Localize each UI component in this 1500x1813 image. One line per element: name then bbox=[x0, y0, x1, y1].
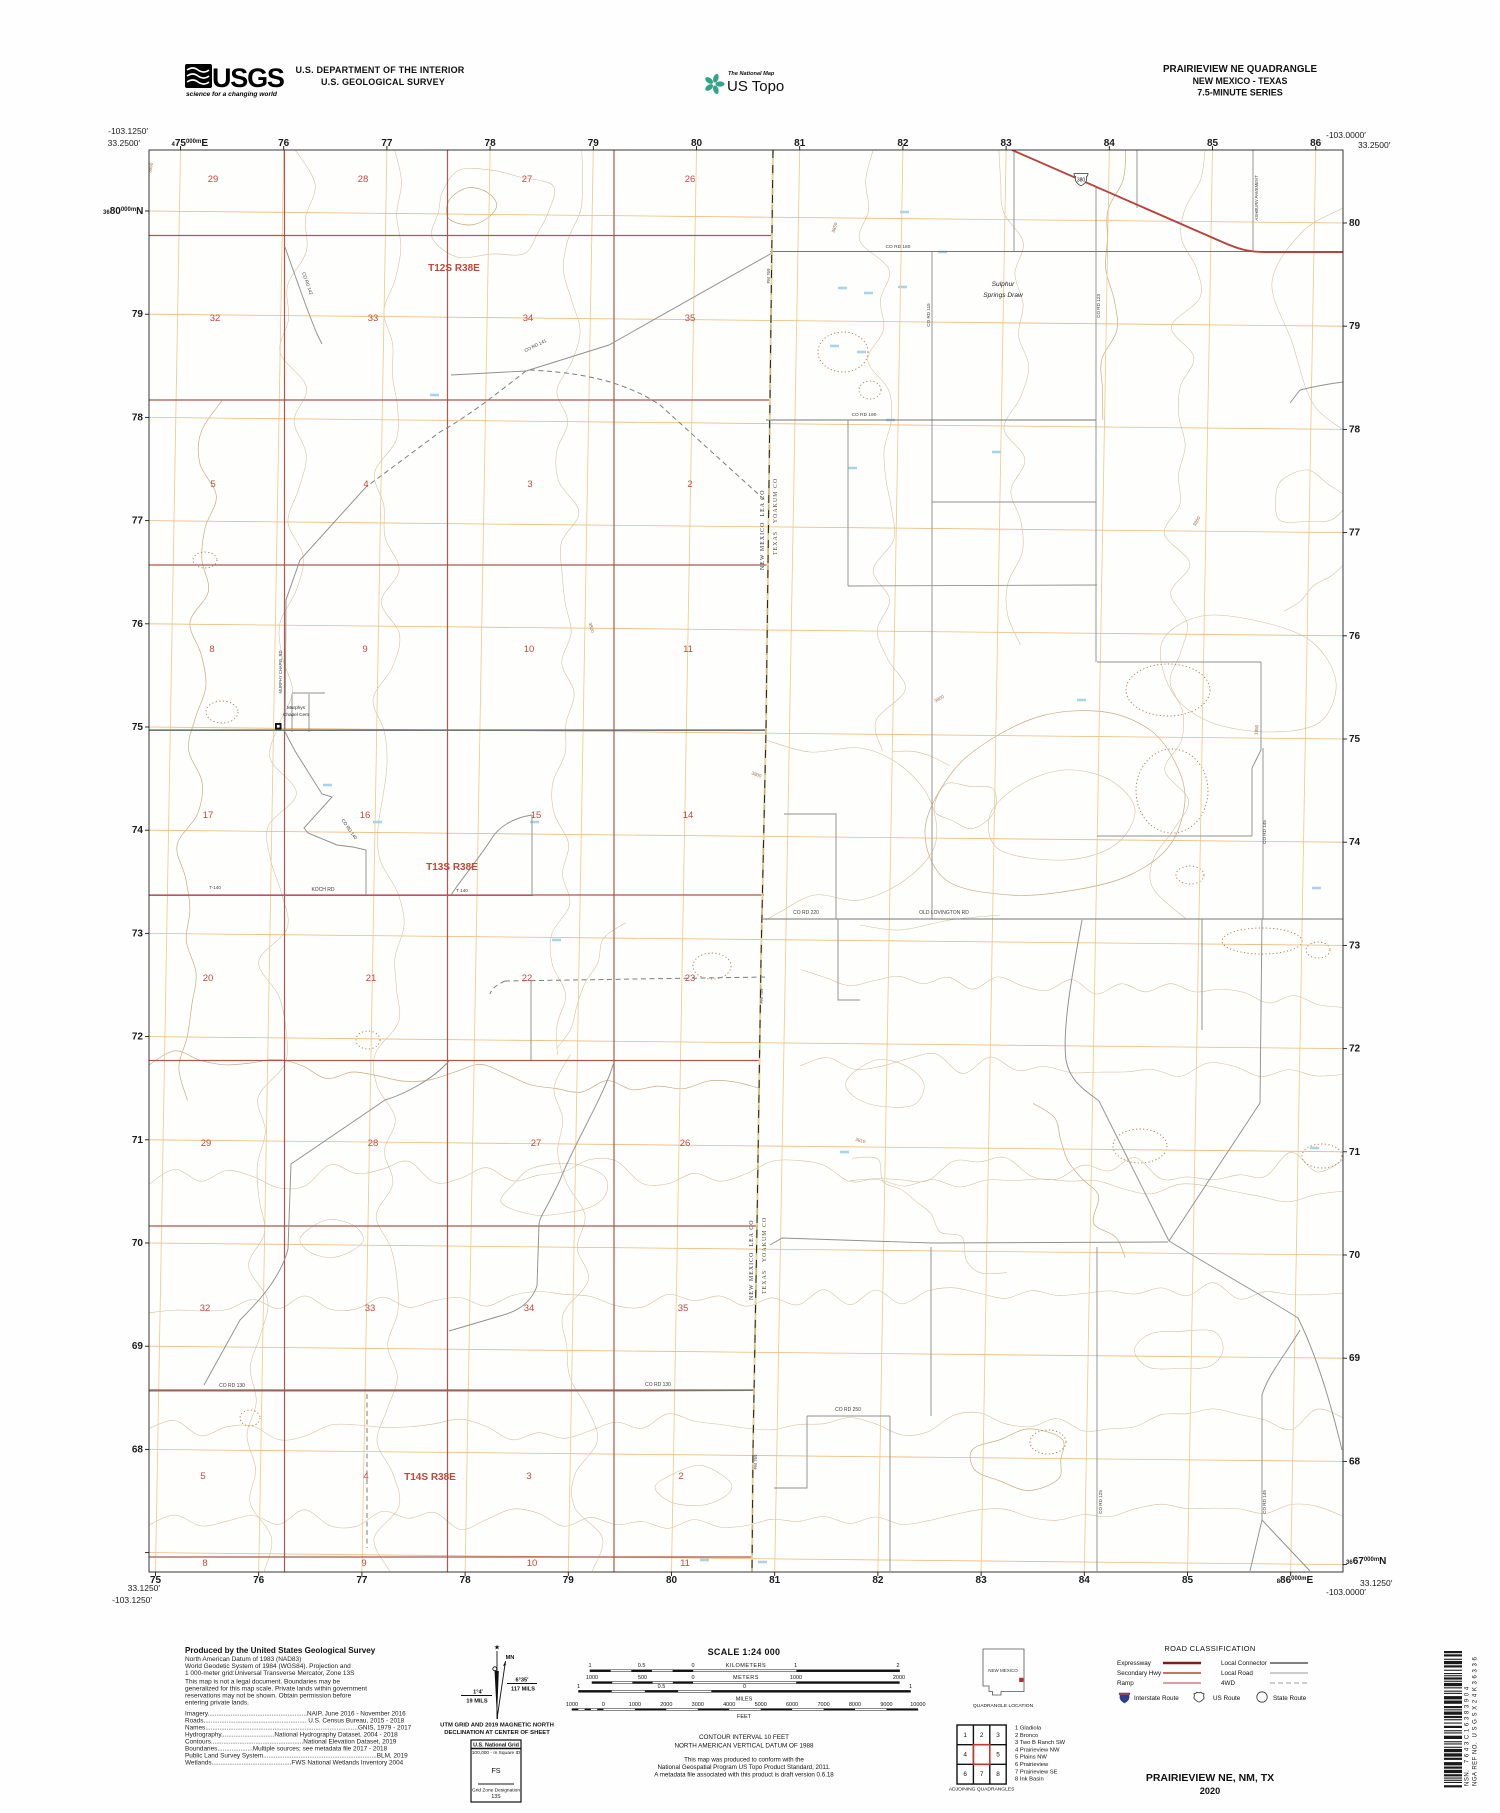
svg-text:-103.1250′: -103.1250′ bbox=[108, 126, 148, 136]
svg-text:80: 80 bbox=[691, 138, 703, 149]
svg-text:SCALE 1:24 000: SCALE 1:24 000 bbox=[708, 1647, 781, 1657]
svg-text:70: 70 bbox=[132, 1238, 144, 1249]
svg-text:11: 11 bbox=[683, 644, 693, 655]
svg-text:Secondary Hwy: Secondary Hwy bbox=[1117, 1670, 1162, 1677]
svg-text:2000: 2000 bbox=[660, 1702, 672, 1708]
svg-text:70: 70 bbox=[1349, 1250, 1361, 1261]
svg-text:FM 769: FM 769 bbox=[766, 268, 771, 283]
svg-text:77: 77 bbox=[356, 1575, 368, 1586]
svg-text:KOCH RD: KOCH RD bbox=[311, 887, 334, 893]
svg-text:2: 2 bbox=[980, 1732, 984, 1739]
svg-text:CO RD 123: CO RD 123 bbox=[1096, 294, 1101, 318]
svg-text:-103.0000′: -103.0000′ bbox=[1326, 1587, 1366, 1597]
svg-text:34: 34 bbox=[523, 313, 534, 324]
svg-text:0: 0 bbox=[602, 1702, 605, 1708]
svg-text:0: 0 bbox=[691, 1663, 694, 1669]
svg-text:33.1250′: 33.1250′ bbox=[128, 1583, 161, 1593]
svg-text:26: 26 bbox=[680, 1138, 691, 1149]
svg-text:19 MILS: 19 MILS bbox=[466, 1699, 487, 1705]
svg-text:20: 20 bbox=[203, 973, 214, 984]
svg-text:The National Map: The National Map bbox=[728, 71, 775, 77]
svg-text:8: 8 bbox=[209, 644, 214, 655]
svg-text:32: 32 bbox=[210, 313, 221, 324]
svg-text:6000: 6000 bbox=[786, 1702, 798, 1708]
svg-text:Roads.........................: Roads...................................… bbox=[185, 1718, 405, 1725]
svg-text:7.5-MINUTE SERIES: 7.5-MINUTE SERIES bbox=[1197, 88, 1283, 98]
svg-text:FS: FS bbox=[491, 1766, 500, 1775]
svg-text:A metadata file associated wit: A metadata file associated with this pro… bbox=[654, 1772, 834, 1779]
svg-text:79: 79 bbox=[563, 1575, 575, 1586]
svg-text:117 MILS: 117 MILS bbox=[511, 1687, 535, 1693]
svg-text:8: 8 bbox=[202, 1558, 207, 1569]
svg-text:34: 34 bbox=[524, 1303, 535, 1314]
svg-text:PRAIRIEVIEW NE QUADRANGLE: PRAIRIEVIEW NE QUADRANGLE bbox=[1163, 64, 1318, 75]
svg-text:NEW MEXICO - TEXAS: NEW MEXICO - TEXAS bbox=[1193, 76, 1288, 86]
svg-text:reservations may not be shown.: reservations may not be shown. Obtain pe… bbox=[185, 1693, 352, 1700]
svg-text:3 Two B Ranch SW: 3 Two B Ranch SW bbox=[1015, 1740, 1066, 1746]
svg-text:4: 4 bbox=[363, 1471, 368, 1482]
svg-text:35: 35 bbox=[685, 313, 696, 324]
svg-text:27: 27 bbox=[522, 174, 533, 185]
svg-text:13S: 13S bbox=[491, 1794, 501, 1800]
svg-text:77: 77 bbox=[1349, 528, 1361, 539]
svg-text:CO RD 190: CO RD 190 bbox=[852, 412, 877, 418]
svg-text:2: 2 bbox=[687, 479, 692, 490]
svg-text:76: 76 bbox=[132, 619, 144, 630]
svg-text:73: 73 bbox=[1349, 940, 1361, 951]
svg-text:5000: 5000 bbox=[755, 1702, 767, 1708]
svg-text:7: 7 bbox=[980, 1771, 984, 1778]
svg-text:9000: 9000 bbox=[880, 1702, 892, 1708]
svg-text:83: 83 bbox=[976, 1575, 988, 1586]
svg-text:Ramp: Ramp bbox=[1117, 1680, 1134, 1687]
svg-text:71: 71 bbox=[1349, 1147, 1361, 1158]
svg-text:CO RD 220: CO RD 220 bbox=[793, 910, 819, 916]
svg-text:FM 769: FM 769 bbox=[753, 1454, 758, 1469]
svg-text:METERS: METERS bbox=[733, 1675, 759, 1681]
svg-text:U.S. DEPARTMENT OF THE INTERIO: U.S. DEPARTMENT OF THE INTERIOR bbox=[295, 65, 464, 75]
svg-text:7 Prairieview SE: 7 Prairieview SE bbox=[1015, 1769, 1058, 1775]
svg-text:78: 78 bbox=[1349, 424, 1361, 435]
svg-text:68: 68 bbox=[132, 1444, 144, 1455]
svg-text:-103.1250′: -103.1250′ bbox=[112, 1595, 152, 1605]
svg-text:11: 11 bbox=[680, 1558, 690, 1569]
svg-text:CO RD 130: CO RD 130 bbox=[645, 1382, 671, 1388]
svg-text:78: 78 bbox=[132, 412, 144, 423]
svg-text:77: 77 bbox=[381, 138, 393, 149]
svg-text:NORTH AMERICAN VERTICAL DATUM: NORTH AMERICAN VERTICAL DATUM OF 1988 bbox=[674, 1743, 814, 1750]
svg-text:USGS: USGS bbox=[212, 63, 284, 93]
svg-text:T14S R38E: T14S R38E bbox=[404, 1472, 456, 1483]
svg-text:ADJOINING QUADRANGLES: ADJOINING QUADRANGLES bbox=[949, 1787, 1015, 1793]
svg-text:State Route: State Route bbox=[1273, 1695, 1307, 1702]
svg-text:1000: 1000 bbox=[586, 1675, 598, 1681]
svg-text:72: 72 bbox=[1349, 1044, 1361, 1055]
svg-text:CO RD 250: CO RD 250 bbox=[835, 1407, 861, 1413]
svg-text:2020: 2020 bbox=[1200, 1786, 1220, 1796]
svg-text:5: 5 bbox=[996, 1751, 1000, 1758]
svg-text:29: 29 bbox=[201, 1138, 212, 1149]
svg-text:Local Road: Local Road bbox=[1221, 1670, 1253, 1677]
svg-text:100,000 - m Square ID: 100,000 - m Square ID bbox=[472, 1750, 521, 1756]
svg-text:FEET: FEET bbox=[737, 1714, 752, 1720]
svg-text:KILOMETERS: KILOMETERS bbox=[726, 1663, 766, 1669]
svg-text:79: 79 bbox=[588, 138, 600, 149]
svg-text:1000: 1000 bbox=[566, 1702, 578, 1708]
svg-text:MILES: MILES bbox=[736, 1697, 753, 1703]
svg-text:Boundaries....................: Boundaries....................Multiple s… bbox=[185, 1746, 388, 1753]
svg-text:5: 5 bbox=[200, 1471, 205, 1482]
svg-text:7000: 7000 bbox=[817, 1702, 829, 1708]
svg-text:NEW MEXICO LEA CO: NEW MEXICO LEA CO bbox=[749, 1219, 755, 1300]
svg-text:T12S R38E: T12S R38E bbox=[428, 263, 480, 274]
svg-text:4WD: 4WD bbox=[1221, 1680, 1235, 1687]
svg-text:TEXAS YOAKUM CO: TEXAS YOAKUM CO bbox=[773, 478, 779, 555]
svg-text:28: 28 bbox=[368, 1138, 379, 1149]
svg-text:Chapel Cem: Chapel Cem bbox=[283, 712, 309, 717]
svg-text:NEW MEXICO: NEW MEXICO bbox=[988, 1668, 1018, 1673]
svg-text:2: 2 bbox=[678, 1471, 683, 1482]
svg-text:FM 769: FM 769 bbox=[759, 988, 764, 1003]
svg-text:5 Plains NW: 5 Plains NW bbox=[1015, 1755, 1047, 1761]
svg-text:1°4′: 1°4′ bbox=[473, 1690, 483, 1696]
svg-text:4000: 4000 bbox=[723, 1702, 735, 1708]
svg-text:1000: 1000 bbox=[790, 1675, 802, 1681]
svg-text:UTM GRID AND 2019 MAGNETIC NOR: UTM GRID AND 2019 MAGNETIC NORTH bbox=[440, 1723, 554, 1729]
svg-text:Local Connector: Local Connector bbox=[1221, 1660, 1267, 1667]
svg-text:Murphys: Murphys bbox=[287, 705, 306, 710]
svg-text:World Geodetic System of 1984: World Geodetic System of 1984 (WGS84). P… bbox=[185, 1663, 351, 1670]
svg-text:6°35′: 6°35′ bbox=[516, 1678, 530, 1684]
svg-text:9: 9 bbox=[362, 644, 367, 655]
svg-text:8 Ink Basin: 8 Ink Basin bbox=[1015, 1777, 1044, 1783]
svg-text:85: 85 bbox=[1182, 1575, 1194, 1586]
svg-text:33: 33 bbox=[365, 1303, 376, 1314]
svg-text:33.2500′: 33.2500′ bbox=[108, 138, 141, 148]
svg-text:77: 77 bbox=[132, 516, 144, 527]
svg-text:33: 33 bbox=[368, 313, 379, 324]
svg-text:NGA REF NO. U S G S X 2 4 K 3: NGA REF NO. U S G S X 2 4 K 3 6 3 3 6 bbox=[1473, 1656, 1479, 1786]
svg-text:27: 27 bbox=[531, 1138, 542, 1149]
svg-text:75: 75 bbox=[132, 722, 144, 733]
svg-text:1000: 1000 bbox=[629, 1702, 641, 1708]
svg-text:6 Prairieview: 6 Prairieview bbox=[1015, 1762, 1049, 1768]
svg-text:14: 14 bbox=[683, 810, 694, 821]
svg-text:74: 74 bbox=[1349, 837, 1361, 848]
svg-text:0.5: 0.5 bbox=[658, 1684, 666, 1690]
svg-text:23: 23 bbox=[685, 973, 696, 984]
svg-text:★: ★ bbox=[494, 1644, 500, 1652]
svg-text:81: 81 bbox=[794, 138, 806, 149]
svg-text:Produced by the United States: Produced by the United States Geological… bbox=[185, 1646, 376, 1655]
svg-text:1 Gladiola: 1 Gladiola bbox=[1015, 1726, 1042, 1732]
svg-text:ASHBURN PAVEMENT: ASHBURN PAVEMENT bbox=[1254, 175, 1259, 222]
svg-text:1: 1 bbox=[794, 1663, 797, 1669]
svg-text:10: 10 bbox=[524, 644, 535, 655]
svg-text:CO RD 145: CO RD 145 bbox=[1262, 820, 1267, 844]
svg-text:entering private lands.: entering private lands. bbox=[185, 1700, 249, 1707]
svg-text:78: 78 bbox=[485, 138, 497, 149]
svg-text:DECLINATION AT CENTER OF SHEET: DECLINATION AT CENTER OF SHEET bbox=[444, 1730, 550, 1736]
svg-text:71: 71 bbox=[132, 1135, 144, 1146]
svg-text:1: 1 bbox=[588, 1663, 591, 1669]
svg-text:CO RD 145: CO RD 145 bbox=[1262, 1490, 1267, 1514]
svg-text:Interstate Route: Interstate Route bbox=[1134, 1695, 1179, 1702]
svg-text:NSN. 7 6 4 3 C 1 6 3 8 3 9 0: NSN. 7 6 4 3 C 1 6 3 8 3 9 0 4 bbox=[1465, 1686, 1471, 1786]
svg-text:-103.0000′: -103.0000′ bbox=[1326, 130, 1366, 140]
svg-text:8: 8 bbox=[996, 1771, 1000, 1778]
svg-text:29: 29 bbox=[208, 174, 219, 185]
svg-text:0: 0 bbox=[691, 1675, 694, 1681]
svg-text:32: 32 bbox=[200, 1303, 211, 1314]
svg-text:OLD LOVINGTON RD: OLD LOVINGTON RD bbox=[919, 910, 969, 916]
svg-text:5: 5 bbox=[210, 479, 215, 490]
svg-text:National Geospatial Program US: National Geospatial Program US Topo Prod… bbox=[657, 1764, 830, 1771]
svg-text:84: 84 bbox=[1104, 138, 1116, 149]
svg-text:CONTOUR INTERVAL 10 FEET: CONTOUR INTERVAL 10 FEET bbox=[699, 1734, 789, 1741]
svg-text:PRAIRIEVIEW NE, NM, TX: PRAIRIEVIEW NE, NM, TX bbox=[1146, 1772, 1274, 1784]
svg-text:16: 16 bbox=[360, 810, 371, 821]
svg-text:U.S. National Grid: U.S. National Grid bbox=[473, 1743, 519, 1749]
svg-text:26: 26 bbox=[685, 174, 696, 185]
svg-text:U.S. GEOLOGICAL SURVEY: U.S. GEOLOGICAL SURVEY bbox=[321, 77, 445, 87]
svg-text:Contours......................: Contours................................… bbox=[185, 1739, 397, 1746]
svg-text:15: 15 bbox=[531, 810, 542, 821]
svg-text:79: 79 bbox=[1349, 321, 1361, 332]
svg-text:T13S R38E: T13S R38E bbox=[426, 862, 478, 873]
svg-text:Expressway: Expressway bbox=[1117, 1660, 1152, 1667]
svg-text:3: 3 bbox=[526, 1471, 531, 1482]
svg-text:83: 83 bbox=[1001, 138, 1013, 149]
svg-text:Public Land Survey System.....: Public Land Survey System...............… bbox=[185, 1753, 408, 1760]
svg-text:T-140: T-140 bbox=[209, 885, 221, 890]
svg-text:69: 69 bbox=[132, 1341, 144, 1352]
svg-text:3: 3 bbox=[527, 479, 532, 490]
svg-text:76: 76 bbox=[1349, 631, 1361, 642]
svg-text:82: 82 bbox=[872, 1575, 884, 1586]
svg-text:78: 78 bbox=[460, 1575, 472, 1586]
svg-text:1850: 1850 bbox=[1254, 724, 1260, 735]
svg-text:73: 73 bbox=[132, 928, 144, 939]
svg-text:82: 82 bbox=[897, 138, 909, 149]
svg-text:MN: MN bbox=[506, 1655, 515, 1661]
svg-text:80: 80 bbox=[1349, 218, 1361, 229]
svg-text:0.5: 0.5 bbox=[638, 1663, 646, 1669]
svg-text:76: 76 bbox=[253, 1575, 265, 1586]
svg-text:6: 6 bbox=[963, 1771, 967, 1778]
svg-text:CO RD 125: CO RD 125 bbox=[1098, 1490, 1103, 1514]
svg-text:Springs Draw: Springs Draw bbox=[983, 292, 1024, 299]
svg-text:69: 69 bbox=[1349, 1353, 1361, 1364]
svg-text:0: 0 bbox=[743, 1684, 746, 1690]
svg-text:1: 1 bbox=[577, 1684, 580, 1690]
svg-text:9: 9 bbox=[361, 1558, 366, 1569]
svg-text:85: 85 bbox=[1207, 138, 1219, 149]
svg-text:MURPHY CHAPEL RD: MURPHY CHAPEL RD bbox=[278, 650, 283, 693]
svg-text:CO RD 115: CO RD 115 bbox=[926, 303, 931, 327]
svg-text:science for a changing world: science for a changing world bbox=[186, 91, 278, 98]
svg-text:4: 4 bbox=[963, 1751, 967, 1758]
svg-text:US Topo: US Topo bbox=[727, 78, 784, 95]
svg-text:TEXAS YOAKUM CO: TEXAS YOAKUM CO bbox=[762, 1217, 768, 1294]
svg-text:4 Prairieview NW: 4 Prairieview NW bbox=[1015, 1747, 1060, 1753]
svg-text:1: 1 bbox=[909, 1684, 912, 1690]
svg-text:17: 17 bbox=[203, 810, 214, 821]
svg-text:generalized for this map scale: generalized for this map scale. Private … bbox=[185, 1686, 367, 1693]
svg-text:QUADRANGLE LOCATION: QUADRANGLE LOCATION bbox=[973, 1703, 1034, 1709]
svg-text:80: 80 bbox=[666, 1575, 678, 1586]
svg-text:NEW MEXICO LEA CO: NEW MEXICO LEA CO bbox=[760, 489, 766, 570]
svg-text:3: 3 bbox=[996, 1732, 1000, 1739]
svg-text:81: 81 bbox=[769, 1575, 781, 1586]
svg-text:This map was produced to confo: This map was produced to conform with th… bbox=[684, 1757, 804, 1764]
svg-text:Sulphur: Sulphur bbox=[992, 281, 1016, 288]
svg-text:10000: 10000 bbox=[910, 1702, 925, 1708]
svg-text:10: 10 bbox=[527, 1558, 538, 1569]
svg-text:1: 1 bbox=[963, 1732, 967, 1739]
svg-text:8000: 8000 bbox=[849, 1702, 861, 1708]
svg-text:2: 2 bbox=[896, 1663, 899, 1669]
svg-text:Hydrography...................: Hydrography.............................… bbox=[185, 1732, 398, 1739]
svg-text:68: 68 bbox=[1349, 1456, 1361, 1467]
svg-text:500: 500 bbox=[638, 1675, 647, 1681]
svg-text:22: 22 bbox=[522, 973, 533, 984]
svg-text:84: 84 bbox=[1079, 1575, 1091, 1586]
svg-text:75: 75 bbox=[1349, 734, 1361, 745]
svg-text:33.2500′: 33.2500′ bbox=[1358, 140, 1391, 150]
svg-text:Wetlands......................: Wetlands................................… bbox=[185, 1760, 404, 1767]
svg-text:74: 74 bbox=[132, 825, 144, 836]
svg-text:28: 28 bbox=[358, 174, 369, 185]
svg-text:2000: 2000 bbox=[893, 1675, 905, 1681]
svg-text:Grid Zone Designation: Grid Zone Designation bbox=[472, 1788, 520, 1794]
svg-text:This map is not a legal docume: This map is not a legal document. Bounda… bbox=[185, 1679, 340, 1686]
svg-text:Imagery.......................: Imagery.................................… bbox=[185, 1711, 406, 1718]
svg-text:79: 79 bbox=[132, 309, 144, 320]
svg-text:86: 86 bbox=[1310, 138, 1322, 149]
svg-text:CO RD 130: CO RD 130 bbox=[219, 1383, 245, 1389]
svg-text:T 140: T 140 bbox=[456, 888, 468, 893]
svg-text:Names.........................: Names...................................… bbox=[185, 1725, 412, 1732]
svg-text:US Route: US Route bbox=[1213, 1695, 1241, 1702]
svg-text:76: 76 bbox=[278, 138, 290, 149]
svg-text:72: 72 bbox=[132, 1032, 144, 1043]
svg-text:4: 4 bbox=[363, 479, 368, 490]
svg-text:North American Datum of 1983 (: North American Datum of 1983 (NAD83) bbox=[185, 1656, 301, 1663]
svg-text:CO RD 180: CO RD 180 bbox=[886, 244, 911, 250]
svg-text:3000: 3000 bbox=[692, 1702, 704, 1708]
svg-text:35: 35 bbox=[678, 1303, 689, 1314]
svg-text:380: 380 bbox=[1077, 178, 1086, 184]
svg-text:2 Bronco: 2 Bronco bbox=[1015, 1733, 1038, 1739]
svg-text:21: 21 bbox=[366, 973, 377, 984]
svg-text:ROAD CLASSIFICATION: ROAD CLASSIFICATION bbox=[1164, 1644, 1255, 1653]
svg-text:1 000-meter grid:Universal Tra: 1 000-meter grid:Universal Transverse Me… bbox=[185, 1670, 355, 1677]
